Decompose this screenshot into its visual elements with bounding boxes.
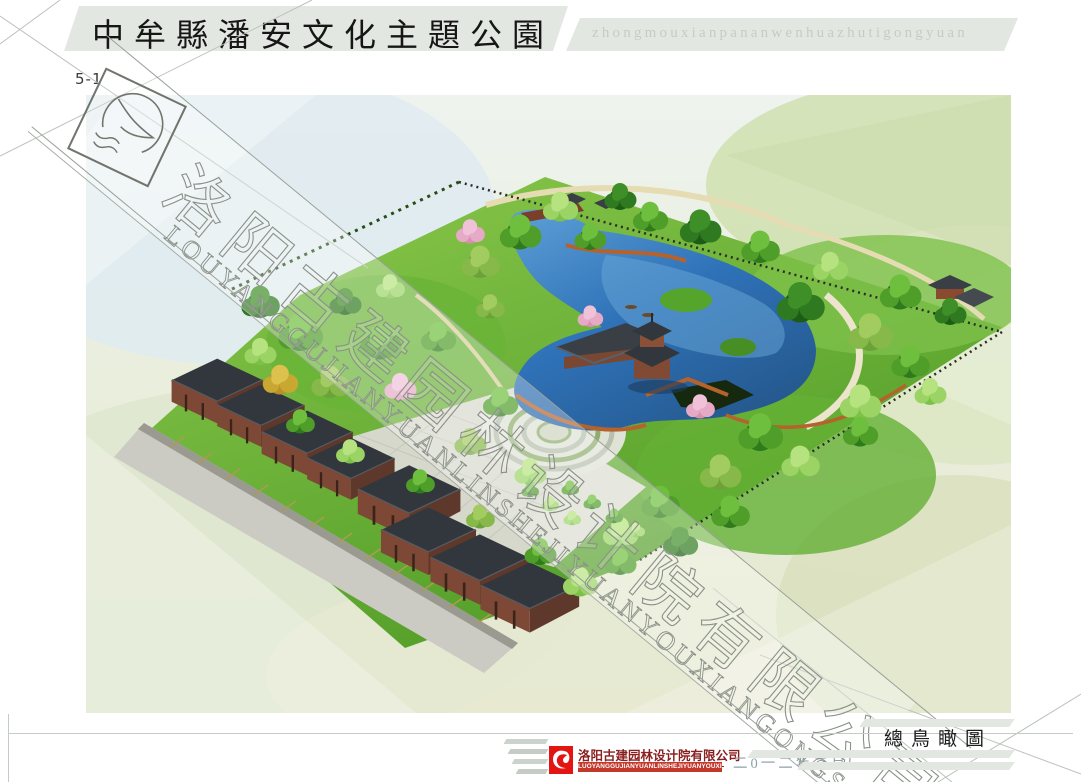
footer-stripe bbox=[512, 759, 549, 764]
page-title: 中牟縣潘安文化主題公園 bbox=[88, 10, 558, 56]
park-scene bbox=[86, 95, 1011, 713]
aerial-rendering bbox=[86, 95, 1011, 713]
footer-stripe bbox=[504, 739, 549, 744]
red-swirl-logo bbox=[549, 746, 573, 774]
sheet-number: 5-1 bbox=[75, 70, 103, 88]
logo-swirl-icon bbox=[549, 746, 573, 774]
lake-island bbox=[660, 288, 712, 312]
title-stripe bbox=[747, 750, 1015, 758]
page-title-pinyin: zhongmouxianpananwenhuazhutigongyuan bbox=[592, 25, 968, 42]
footer-stripe bbox=[516, 769, 549, 774]
footer-stripe bbox=[508, 749, 549, 754]
lake-island bbox=[720, 338, 756, 356]
footer-company-latin: LUOYANGGUJIANYUANLINSHEJIYUANYOUXIANGONG… bbox=[578, 762, 722, 772]
presentation-sheet: 中牟縣潘安文化主題公園 zhongmouxianpananwenhuazhuti… bbox=[0, 0, 1081, 782]
footer-left-tick bbox=[8, 714, 9, 782]
drawing-title: 總鳥瞰圖 bbox=[884, 724, 992, 751]
title-stripe bbox=[797, 762, 1015, 770]
boat bbox=[625, 305, 637, 309]
